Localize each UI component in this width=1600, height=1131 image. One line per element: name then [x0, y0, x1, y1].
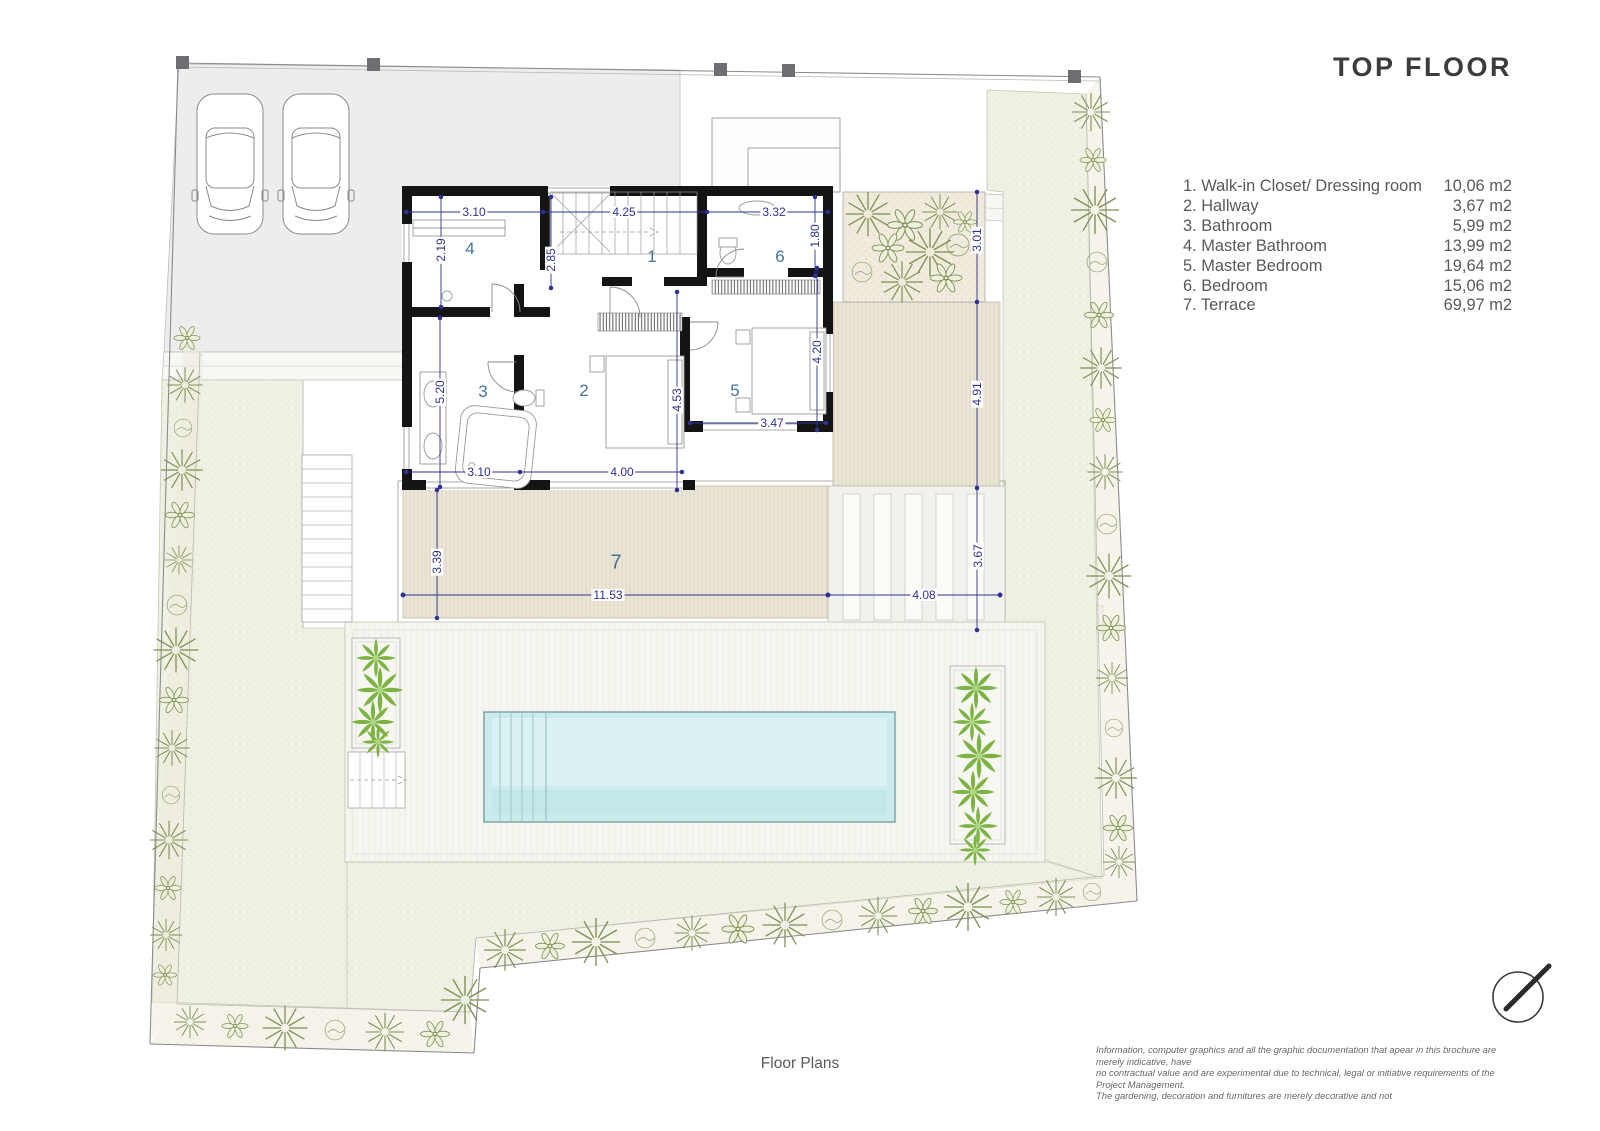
legend-row: 5. Master Bedroom 19,64 m2 — [1183, 257, 1512, 277]
legend-area: 5,99 m2 — [1453, 217, 1512, 237]
legend-area: 19,64 m2 — [1444, 257, 1512, 277]
room-number-master: 5 — [730, 381, 739, 401]
dim-pergola-height: 3.67 — [972, 542, 984, 569]
dim-bath-top-width: 3.32 — [760, 206, 787, 218]
disclaimer-line: no contractual value and are experimenta… — [1096, 1067, 1520, 1090]
dim-bath-top-depth: 1.80 — [809, 222, 821, 249]
legend-label: 2. Hallway — [1183, 197, 1259, 217]
dim-deck-side-height: 4.91 — [971, 380, 983, 407]
disclaimer-text: Information, computer graphics and all t… — [1096, 1044, 1520, 1102]
legend-area: 13,99 m2 — [1444, 237, 1512, 257]
brochure-page: TOP FLOOR 1. Walk-in Closet/ Dressing ro… — [0, 0, 1600, 1131]
dim-master-height: 4.20 — [811, 338, 823, 365]
disclaimer-line: Information, computer graphics and all t… — [1096, 1044, 1520, 1067]
dim-bath-width: 3.10 — [465, 466, 492, 478]
legend-label: 1. Walk-in Closet/ Dressing room — [1183, 177, 1422, 197]
legend-row: 7. Terrace 69,97 m2 — [1183, 296, 1512, 316]
dim-terrace-width: 11.53 — [591, 589, 624, 601]
dim-terrace-height: 3.39 — [431, 548, 443, 575]
room-number-bedroom: 2 — [579, 381, 588, 401]
dim-stair-width: 4.25 — [610, 206, 637, 218]
dim-bath-height: 5.20 — [434, 378, 446, 405]
legend-label: 7. Terrace — [1183, 296, 1256, 316]
dim-patio-depth: 3.01 — [971, 226, 983, 253]
legend-area: 10,06 m2 — [1444, 177, 1512, 197]
swimming-pool — [484, 712, 895, 822]
dim-bedroom-width: 4.00 — [608, 466, 635, 478]
dim-stair-depth: 2.85 — [545, 246, 557, 273]
legend-row: 2. Hallway 3,67 m2 — [1183, 197, 1512, 217]
room-number-hall: 1 — [647, 247, 656, 267]
north-compass-icon — [1493, 966, 1549, 1022]
dim-closet-depth: 2.19 — [435, 236, 447, 263]
legend-label: 6. Bedroom — [1183, 277, 1268, 297]
dim-pergola-width: 4.08 — [910, 589, 937, 601]
legend-area: 69,97 m2 — [1444, 296, 1512, 316]
dim-closet-width: 3.10 — [460, 206, 487, 218]
furniture-fixtures — [413, 201, 826, 490]
room-number-terrace: 7 — [610, 552, 621, 575]
room-number-closet: 4 — [465, 239, 474, 259]
legend-label: 3. Bathroom — [1183, 217, 1272, 237]
staircase — [550, 192, 697, 254]
dim-master-width: 3.47 — [758, 417, 785, 429]
disclaimer-line: The gardening, decoration and furnitures… — [1096, 1090, 1520, 1102]
floor-plan-drawing — [0, 0, 1600, 1131]
legend-row: 4. Master Bathroom 13,99 m2 — [1183, 237, 1512, 257]
roof-skylight — [712, 118, 840, 192]
page-title: TOP FLOOR — [1170, 52, 1512, 83]
room-number-bath6: 6 — [775, 247, 784, 267]
room-number-bath3: 3 — [478, 382, 487, 402]
legend-label: 4. Master Bathroom — [1183, 237, 1327, 257]
dim-bedroom-height: 4.53 — [671, 386, 683, 413]
legend-label: 5. Master Bedroom — [1183, 257, 1322, 277]
legend-row: 3. Bathroom 5,99 m2 — [1183, 217, 1512, 237]
legend-row: 1. Walk-in Closet/ Dressing room 10,06 m… — [1183, 177, 1512, 197]
page-caption: Floor Plans — [700, 1055, 900, 1073]
legend-row: 6. Bedroom 15,06 m2 — [1183, 277, 1512, 297]
legend-area: 3,67 m2 — [1453, 197, 1512, 217]
legend-area: 15,06 m2 — [1444, 277, 1512, 297]
room-legend: 1. Walk-in Closet/ Dressing room 10,06 m… — [1183, 177, 1512, 316]
